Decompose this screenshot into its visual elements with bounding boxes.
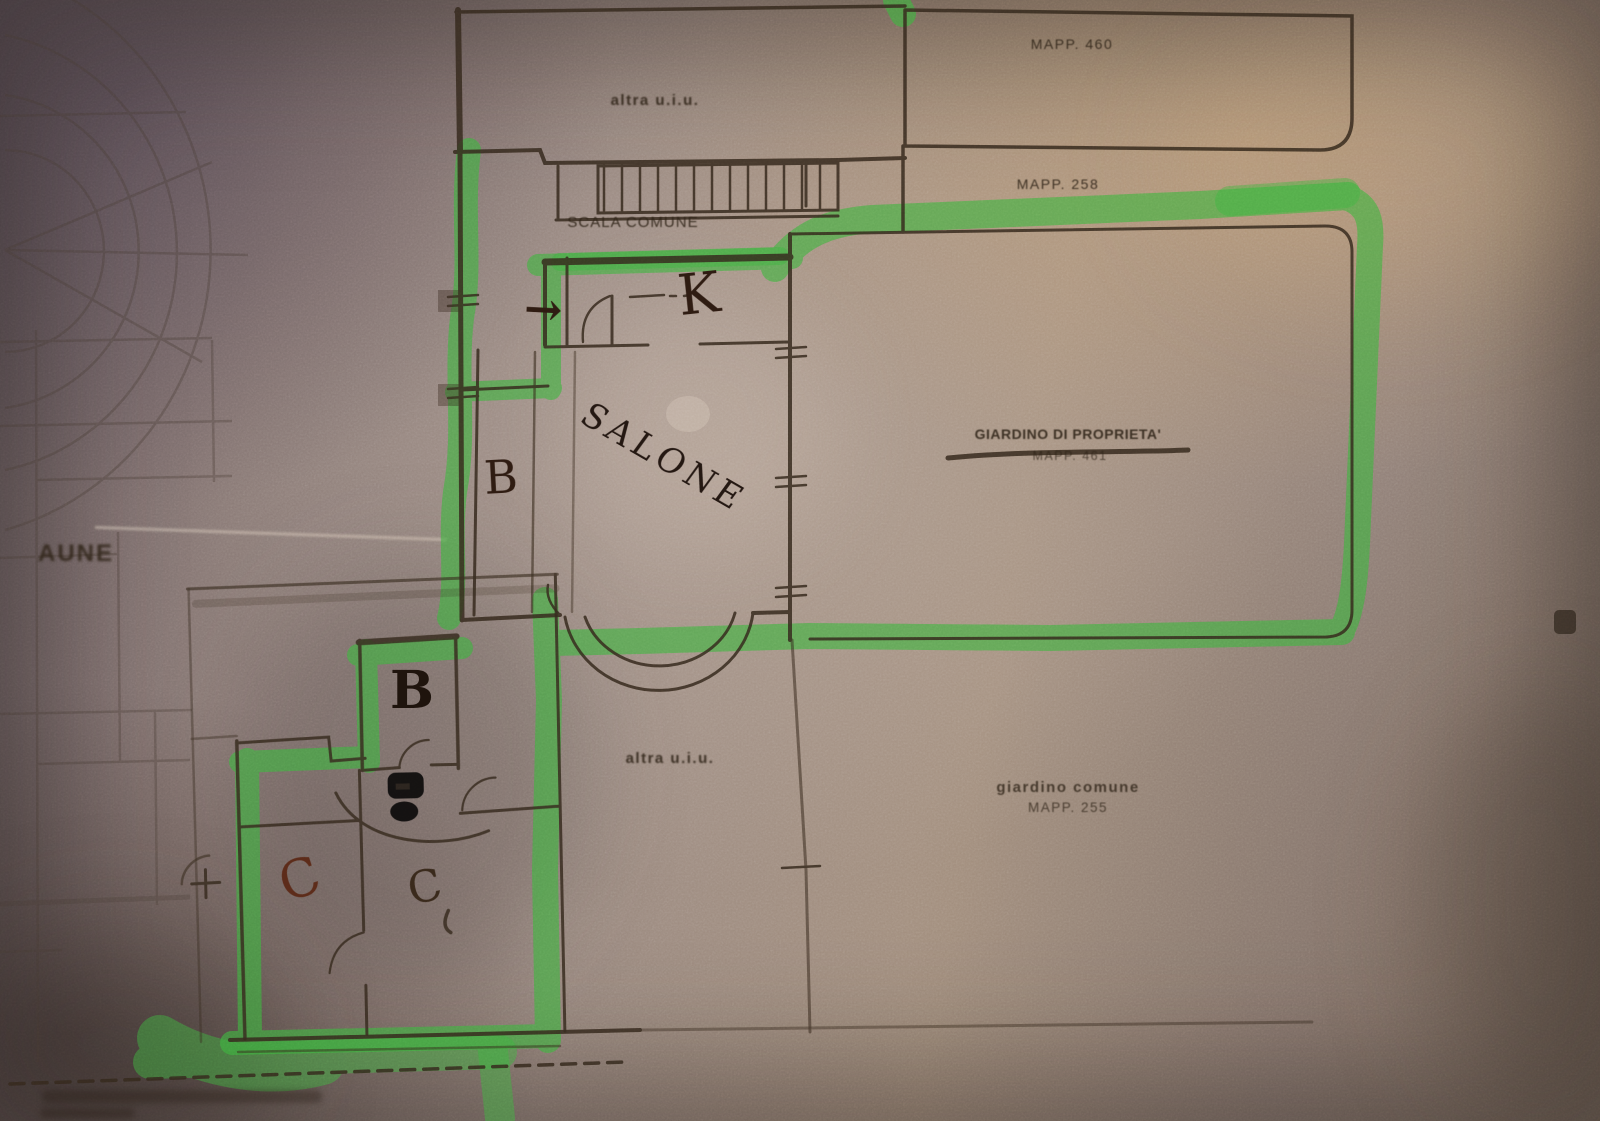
label-giardino-comune: giardino comune [958, 779, 1178, 796]
plan-drawing [0, 0, 1600, 1121]
floorplan-photo: MAPP. 460 altra u.i.u. MAPP. 258 SCALA C… [0, 0, 1600, 1121]
label-scala-comune: SCALA COMUNE [553, 214, 713, 231]
label-giardino-comune-mapp: MAPP. 255 [958, 800, 1178, 815]
label-altra-uiu-bottom: altra u.i.u. [590, 750, 750, 767]
illegible-bottom-note-2 [40, 1108, 135, 1118]
annotation-k: K [675, 260, 723, 329]
label-altra-uiu-top: altra u.i.u. [575, 92, 735, 109]
label-mapp-460: MAPP. 460 [982, 36, 1162, 52]
label-edge-fragment: AUNE [38, 540, 114, 568]
label-mapp-461: MAPP. 461 [990, 449, 1150, 463]
label-mapp-258: MAPP. 258 [968, 176, 1148, 192]
annotation-b-room: B [390, 660, 434, 721]
photo-grain [0, 0, 1600, 1121]
annotation-arrow: → [523, 281, 564, 337]
label-giardino-proprieta: GIARDINO DI PROPRIETA' [938, 426, 1198, 442]
annotation-b-corridor: B [483, 449, 520, 505]
illegible-bottom-note [42, 1090, 322, 1103]
